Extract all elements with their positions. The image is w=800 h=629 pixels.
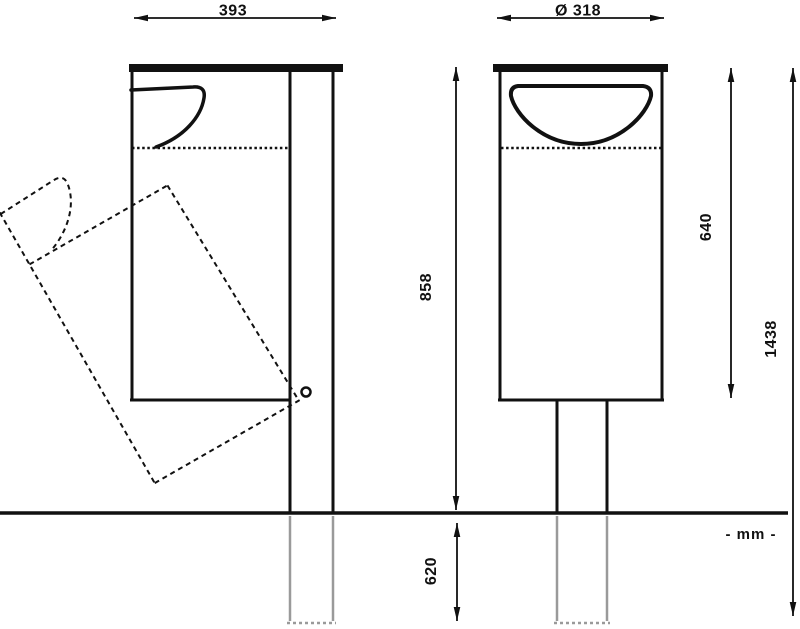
front-view <box>493 64 668 623</box>
tilted-back-edge <box>167 182 297 402</box>
tilted-bottom-edge <box>155 400 301 483</box>
side-view <box>0 64 343 623</box>
unit-label: - mm - <box>726 526 777 543</box>
bin-opening-lip-profile <box>131 87 204 147</box>
dim-label-underground-depth: 620 <box>423 557 440 585</box>
dim-label-total-height: 1438 <box>763 320 780 358</box>
dim-label-bin-height: 640 <box>698 213 715 241</box>
dim-label-width: 393 <box>219 3 247 20</box>
dim-label-height-above-ground: 858 <box>418 273 435 301</box>
waste-bin-drawing: 393 Ø 318 858 620 640 1438 - mm - <box>0 0 800 629</box>
bin-opening-front <box>511 86 651 144</box>
dim-label-diameter: Ø 318 <box>555 3 601 20</box>
tilted-lip-profile <box>0 175 93 264</box>
side-view-top-cap <box>129 64 343 72</box>
dimension-lines <box>134 18 793 621</box>
technical-drawing-canvas: 393 Ø 318 858 620 640 1438 - mm - <box>0 0 800 629</box>
post-underground <box>287 516 336 623</box>
tilted-top-edge <box>29 186 166 265</box>
tilted-bin-dashed <box>0 128 300 483</box>
pole-underground <box>554 516 610 623</box>
front-view-top-cap <box>493 64 668 72</box>
pivot-circle <box>302 388 311 397</box>
